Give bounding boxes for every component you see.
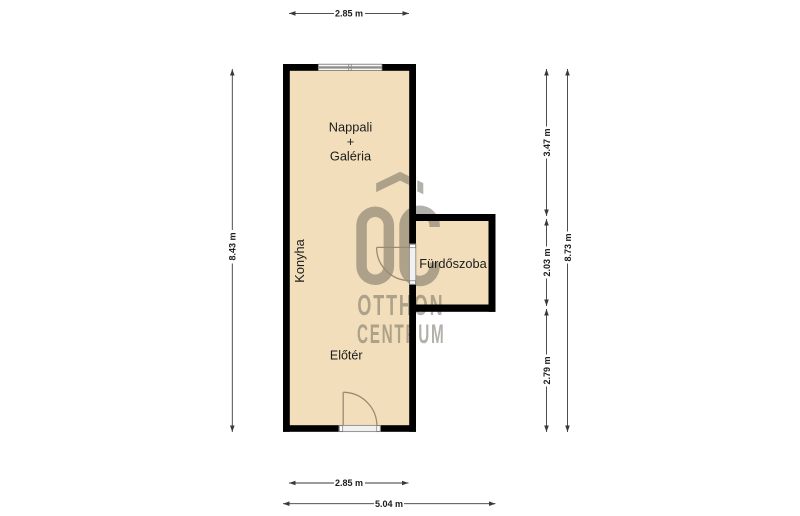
svg-text:5.04 m: 5.04 m [375, 499, 403, 509]
svg-text:Előtér: Előtér [330, 349, 363, 363]
svg-text:Nappali: Nappali [329, 120, 372, 135]
svg-text:2.85 m: 2.85 m [335, 9, 363, 19]
svg-text:Fürdőszoba: Fürdőszoba [419, 256, 487, 271]
svg-text:Konyha: Konyha [292, 238, 307, 282]
svg-text:2.03 m: 2.03 m [542, 248, 552, 276]
svg-text:8.73 m: 8.73 m [563, 233, 573, 261]
svg-text:2.85 m: 2.85 m [335, 478, 363, 488]
svg-text:Galéria: Galéria [330, 149, 372, 164]
svg-text:8.43 m: 8.43 m [228, 232, 238, 260]
svg-text:CENTRUM: CENTRUM [357, 318, 445, 349]
svg-text:+: + [347, 134, 354, 149]
svg-text:2.79 m: 2.79 m [542, 356, 552, 384]
svg-text:3.47 m: 3.47 m [542, 128, 552, 156]
